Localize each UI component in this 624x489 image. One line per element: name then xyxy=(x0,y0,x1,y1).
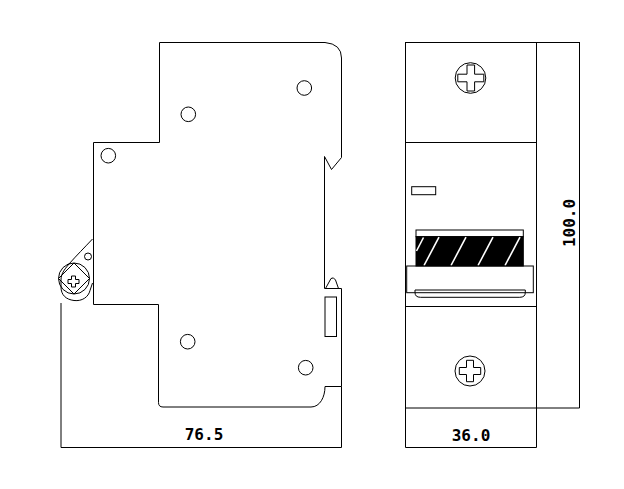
front-view-outline xyxy=(406,43,537,409)
dimension-label-front-height: 100.0 xyxy=(560,199,579,247)
dimension-front-height: 100.0 xyxy=(537,43,581,409)
dimension-label-side-width: 76.5 xyxy=(185,425,224,444)
bottom-screw xyxy=(455,356,485,386)
toggle-handle-area xyxy=(407,230,534,297)
din-rail-slot xyxy=(325,297,337,337)
label-window xyxy=(412,187,436,195)
screw-cross-icon xyxy=(458,65,484,91)
mounting-hole xyxy=(298,360,313,375)
handle-recess-top xyxy=(416,230,523,237)
drawing-canvas: 76.5 xyxy=(0,0,624,489)
mounting-hole xyxy=(297,81,312,96)
mounting-hole xyxy=(180,334,195,349)
dimension-label-front-width: 36.0 xyxy=(452,426,491,445)
dimension-front-width: 36.0 xyxy=(406,408,537,448)
technical-drawing: 76.5 xyxy=(0,0,624,489)
side-view-outline xyxy=(94,43,342,408)
top-screw xyxy=(455,63,486,94)
screw-cross-icon xyxy=(68,276,79,287)
pivot-hole xyxy=(85,253,92,260)
handle-base-strip xyxy=(415,290,525,297)
din-clip xyxy=(59,239,93,301)
screw-head xyxy=(455,63,486,94)
clip-barb xyxy=(326,278,339,289)
front-view: 100.0 36.0 xyxy=(406,43,581,448)
screw-cross-icon xyxy=(459,360,480,381)
mounting-hole xyxy=(181,107,196,122)
mounting-hole xyxy=(101,148,116,163)
handle-escutcheon xyxy=(407,266,534,293)
din-clip-screw-head xyxy=(59,263,90,294)
side-view: 76.5 xyxy=(59,43,342,448)
dimension-side-width: 76.5 xyxy=(61,303,342,448)
